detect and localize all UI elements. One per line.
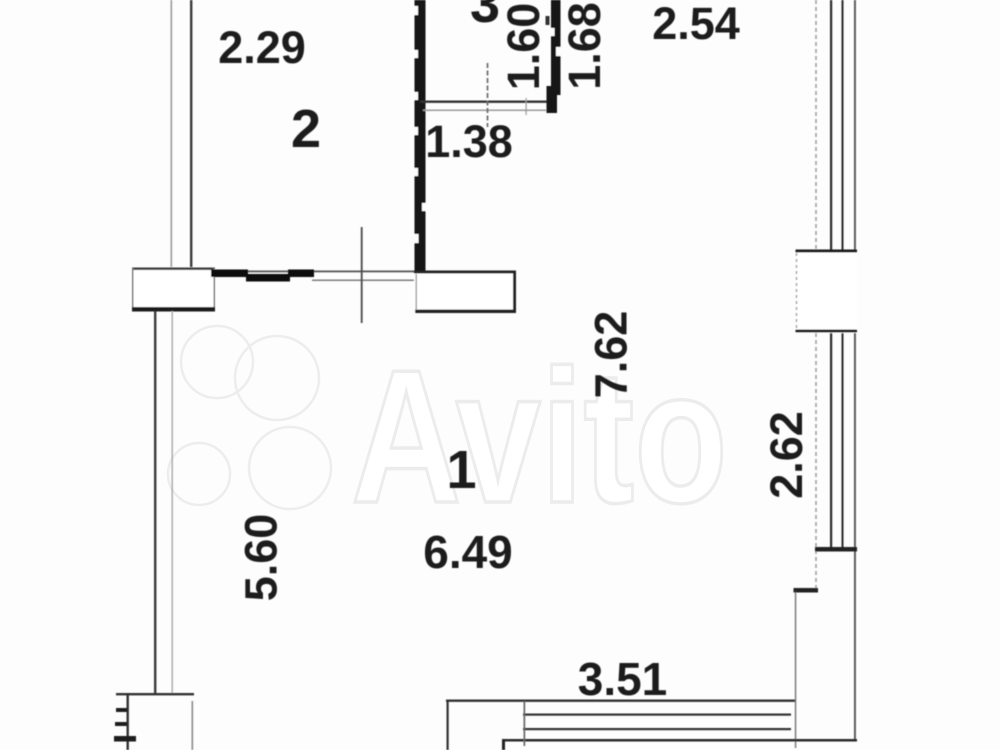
svg-text:2.62: 2.62 — [761, 411, 812, 499]
svg-text:Avito: Avito — [351, 330, 728, 543]
svg-text:1.38: 1.38 — [425, 116, 513, 167]
svg-text:1.60: 1.60 — [498, 3, 549, 91]
svg-text:1.68: 1.68 — [559, 2, 610, 90]
svg-text:2: 2 — [291, 99, 321, 159]
svg-text:2.29: 2.29 — [218, 22, 306, 73]
svg-text:3: 3 — [470, 0, 500, 34]
svg-text:7.62: 7.62 — [586, 311, 637, 399]
svg-text:5.60: 5.60 — [236, 514, 287, 602]
svg-text:6.49: 6.49 — [423, 526, 513, 578]
svg-text:1: 1 — [446, 440, 476, 500]
svg-text:2.54: 2.54 — [652, 0, 740, 49]
svg-text:3.51: 3.51 — [578, 653, 668, 705]
